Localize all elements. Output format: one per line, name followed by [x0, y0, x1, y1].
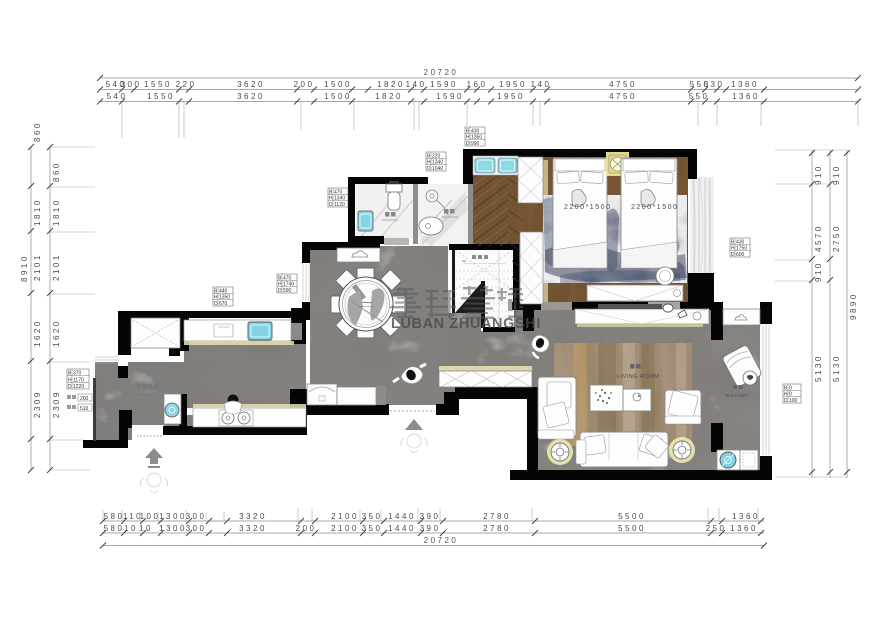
svg-text:10: 10	[124, 524, 138, 533]
svg-text:2750: 2750	[832, 224, 841, 252]
svg-text:2200*1500: 2200*1500	[631, 204, 678, 211]
svg-text:1950: 1950	[499, 80, 527, 89]
svg-text:300: 300	[186, 512, 207, 521]
svg-text:1550: 1550	[147, 92, 175, 101]
svg-text:H: H	[731, 246, 735, 252]
svg-text:470: 470	[283, 275, 292, 281]
svg-text:1300: 1300	[159, 524, 187, 533]
svg-text:1170: 1170	[73, 377, 84, 383]
svg-text:1360: 1360	[732, 512, 760, 521]
svg-text:H: H	[466, 135, 470, 141]
svg-text:510: 510	[80, 406, 89, 412]
svg-text:1360: 1360	[732, 92, 760, 101]
svg-text:470: 470	[334, 189, 343, 195]
svg-text:2200*1500: 2200*1500	[564, 204, 611, 211]
svg-text:860: 860	[52, 161, 61, 182]
svg-text:300: 300	[186, 524, 207, 533]
svg-text:1810: 1810	[52, 198, 61, 226]
svg-text:1810: 1810	[33, 198, 42, 226]
svg-text:10: 10	[139, 524, 153, 533]
svg-text:990: 990	[471, 141, 480, 147]
svg-text:2309: 2309	[52, 390, 61, 418]
svg-text:1340: 1340	[334, 196, 345, 202]
svg-text:2780: 2780	[483, 512, 511, 521]
svg-text:1360: 1360	[731, 80, 759, 89]
svg-text:100: 100	[789, 398, 798, 404]
svg-text:910: 910	[814, 164, 823, 185]
svg-text:1820: 1820	[377, 80, 405, 89]
svg-text:D: D	[214, 301, 218, 307]
svg-text:D: D	[731, 252, 735, 258]
svg-text:100: 100	[140, 512, 161, 521]
svg-text:1500: 1500	[324, 80, 352, 89]
svg-text:0: 0	[789, 385, 792, 391]
svg-text:1340: 1340	[432, 160, 443, 166]
svg-text:1740: 1740	[283, 282, 294, 288]
svg-text:1590: 1590	[430, 80, 458, 89]
svg-text:1500: 1500	[324, 92, 352, 101]
svg-text:5130: 5130	[832, 354, 841, 382]
svg-text:D: D	[784, 398, 788, 404]
svg-text:2100: 2100	[331, 524, 359, 533]
svg-text:440: 440	[219, 288, 228, 294]
svg-text:2101: 2101	[52, 253, 61, 281]
svg-text:4750: 4750	[609, 80, 637, 89]
svg-text:8910: 8910	[20, 254, 29, 282]
svg-text:H: H	[214, 295, 218, 301]
svg-text:H: H	[278, 282, 282, 288]
svg-text:3620: 3620	[237, 80, 265, 89]
svg-text:0: 0	[789, 392, 792, 398]
svg-text:1440: 1440	[388, 524, 416, 533]
svg-text:2100: 2100	[331, 512, 359, 521]
svg-text:1590: 1590	[436, 92, 464, 101]
svg-text:200: 200	[80, 396, 89, 402]
svg-text:D: D	[427, 166, 431, 172]
svg-text:D: D	[278, 288, 282, 294]
svg-text:H: H	[784, 392, 788, 398]
svg-text:1620: 1620	[52, 319, 61, 347]
svg-text:1440: 1440	[388, 512, 416, 521]
svg-text:580: 580	[104, 512, 125, 521]
svg-text:4750: 4750	[609, 92, 637, 101]
svg-text:2101: 2101	[33, 253, 42, 281]
svg-text:1350: 1350	[471, 135, 482, 141]
svg-text:D: D	[329, 202, 333, 208]
svg-text:200: 200	[294, 80, 315, 89]
svg-text:1750: 1750	[736, 246, 747, 252]
svg-text:1120: 1120	[334, 202, 345, 208]
svg-text:670: 670	[219, 301, 228, 307]
svg-text:1550: 1550	[144, 80, 172, 89]
svg-text:430: 430	[471, 128, 480, 134]
svg-text:220: 220	[432, 153, 441, 159]
svg-text:3620: 3620	[237, 92, 265, 101]
svg-text:2780: 2780	[483, 524, 511, 533]
svg-text:LIVING ROOM: LIVING ROOM	[617, 374, 659, 380]
svg-text:860: 860	[33, 121, 42, 142]
svg-text:D: D	[466, 141, 470, 147]
svg-text:H: H	[68, 377, 72, 383]
svg-text:1950: 1950	[497, 92, 525, 101]
svg-text:20720: 20720	[424, 68, 459, 77]
svg-text:1220: 1220	[73, 384, 84, 390]
svg-text:3320: 3320	[239, 524, 267, 533]
svg-text:430: 430	[736, 239, 745, 245]
svg-text:1040: 1040	[432, 166, 443, 172]
svg-text:5500: 5500	[618, 524, 646, 533]
svg-text:1300: 1300	[159, 512, 187, 521]
svg-text:9890: 9890	[849, 292, 858, 320]
svg-text:1820: 1820	[375, 92, 403, 101]
svg-text:2309: 2309	[33, 390, 42, 418]
svg-text:370: 370	[73, 371, 82, 377]
svg-text:5130: 5130	[814, 354, 823, 382]
svg-text:140: 140	[406, 80, 427, 89]
svg-text:910: 910	[832, 164, 841, 185]
svg-text:20720: 20720	[424, 536, 459, 545]
svg-text:4570: 4570	[814, 224, 823, 252]
svg-text:160: 160	[467, 80, 488, 89]
svg-text:600: 600	[736, 252, 745, 258]
svg-text:1350: 1350	[219, 295, 230, 301]
svg-text:H: H	[329, 196, 333, 202]
svg-text:580: 580	[104, 524, 125, 533]
svg-text:1620: 1620	[33, 319, 42, 347]
svg-text:200: 200	[296, 524, 317, 533]
svg-text:3320: 3320	[239, 512, 267, 521]
svg-text:590: 590	[283, 288, 292, 294]
svg-text:BALCONY: BALCONY	[726, 393, 748, 398]
svg-text:1360: 1360	[730, 524, 758, 533]
svg-text:LUBAN ZHUANGSHI: LUBAN ZHUANGSHI	[391, 316, 541, 332]
svg-text:220: 220	[176, 80, 197, 89]
svg-text:H: H	[427, 160, 431, 166]
svg-text:D: D	[68, 384, 72, 390]
svg-text:910: 910	[814, 261, 823, 282]
svg-text:5500: 5500	[618, 512, 646, 521]
